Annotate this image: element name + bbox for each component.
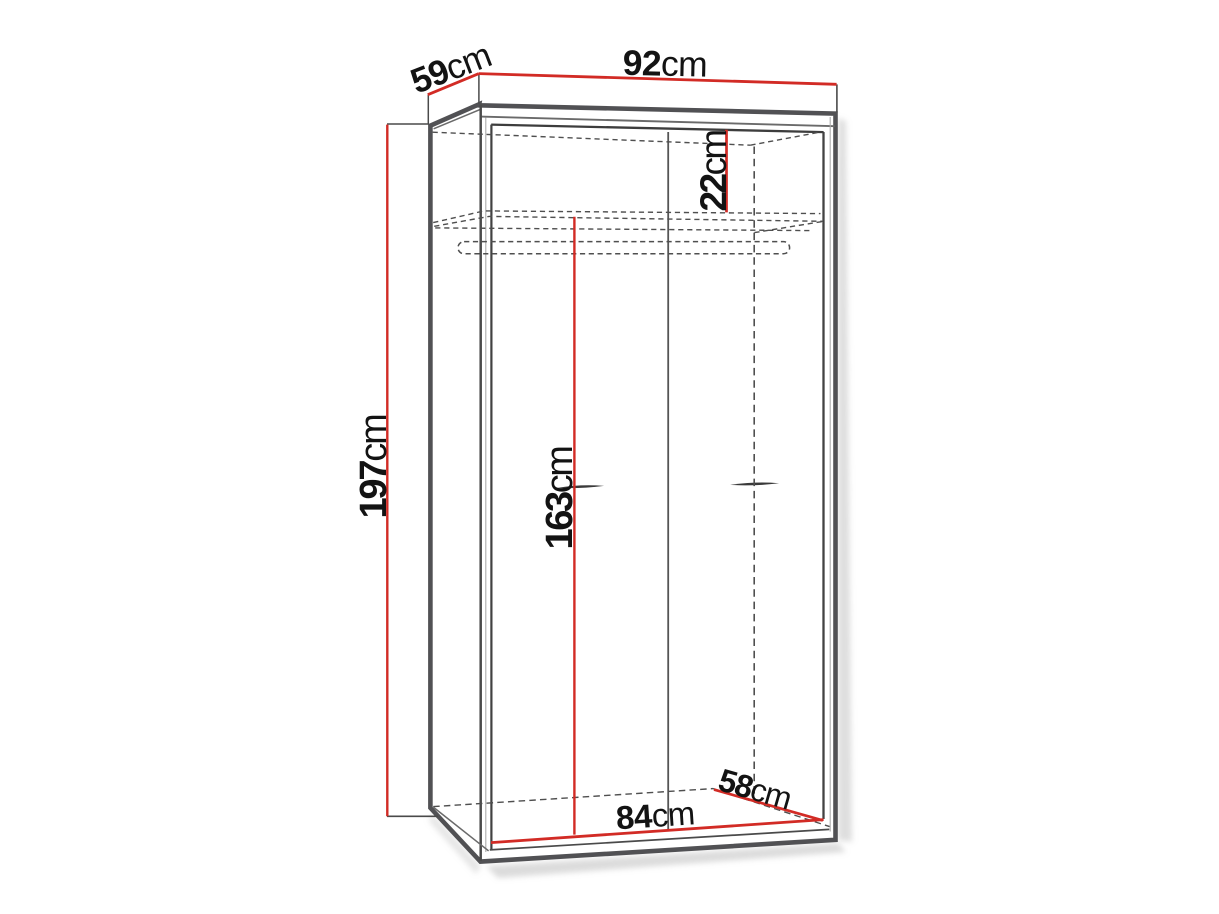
- svg-text:92cm: 92cm: [622, 43, 707, 85]
- svg-text:58cm: 58cm: [715, 762, 796, 817]
- svg-text:197cm: 197cm: [353, 415, 395, 519]
- svg-text:84cm: 84cm: [615, 794, 696, 836]
- svg-text:59cm: 59cm: [405, 36, 496, 102]
- svg-text:22cm: 22cm: [693, 131, 734, 212]
- svg-text:163cm: 163cm: [539, 447, 581, 550]
